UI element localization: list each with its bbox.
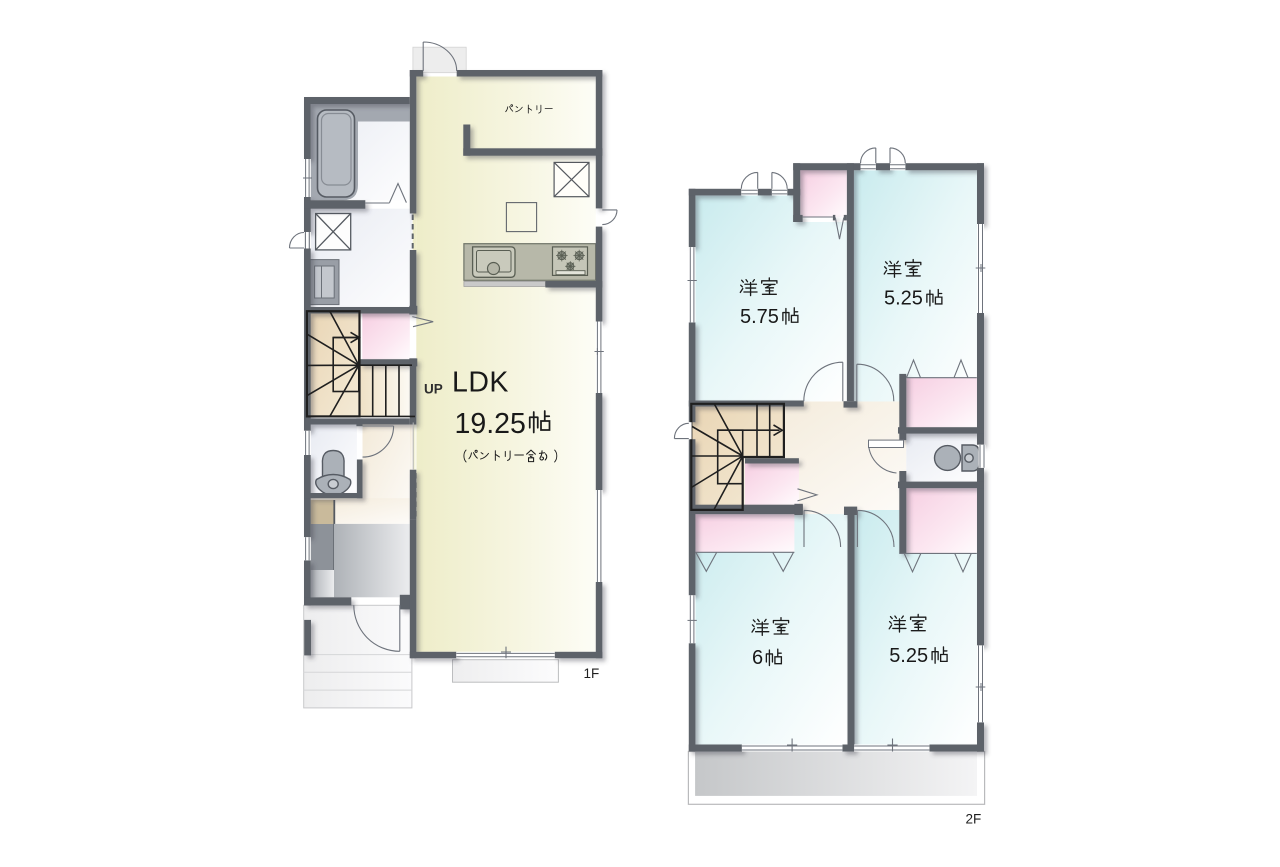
svg-text:5.25: 5.25: [884, 288, 923, 310]
svg-text:1F: 1F: [584, 666, 600, 681]
svg-text:2F: 2F: [966, 812, 982, 827]
svg-text:LDK: LDK: [452, 366, 509, 398]
svg-text:5.25: 5.25: [889, 645, 928, 667]
svg-text:5.75: 5.75: [740, 306, 779, 328]
svg-text:UP: UP: [424, 381, 443, 396]
svg-text:6: 6: [752, 647, 763, 669]
svg-text:19.25: 19.25: [455, 408, 526, 440]
